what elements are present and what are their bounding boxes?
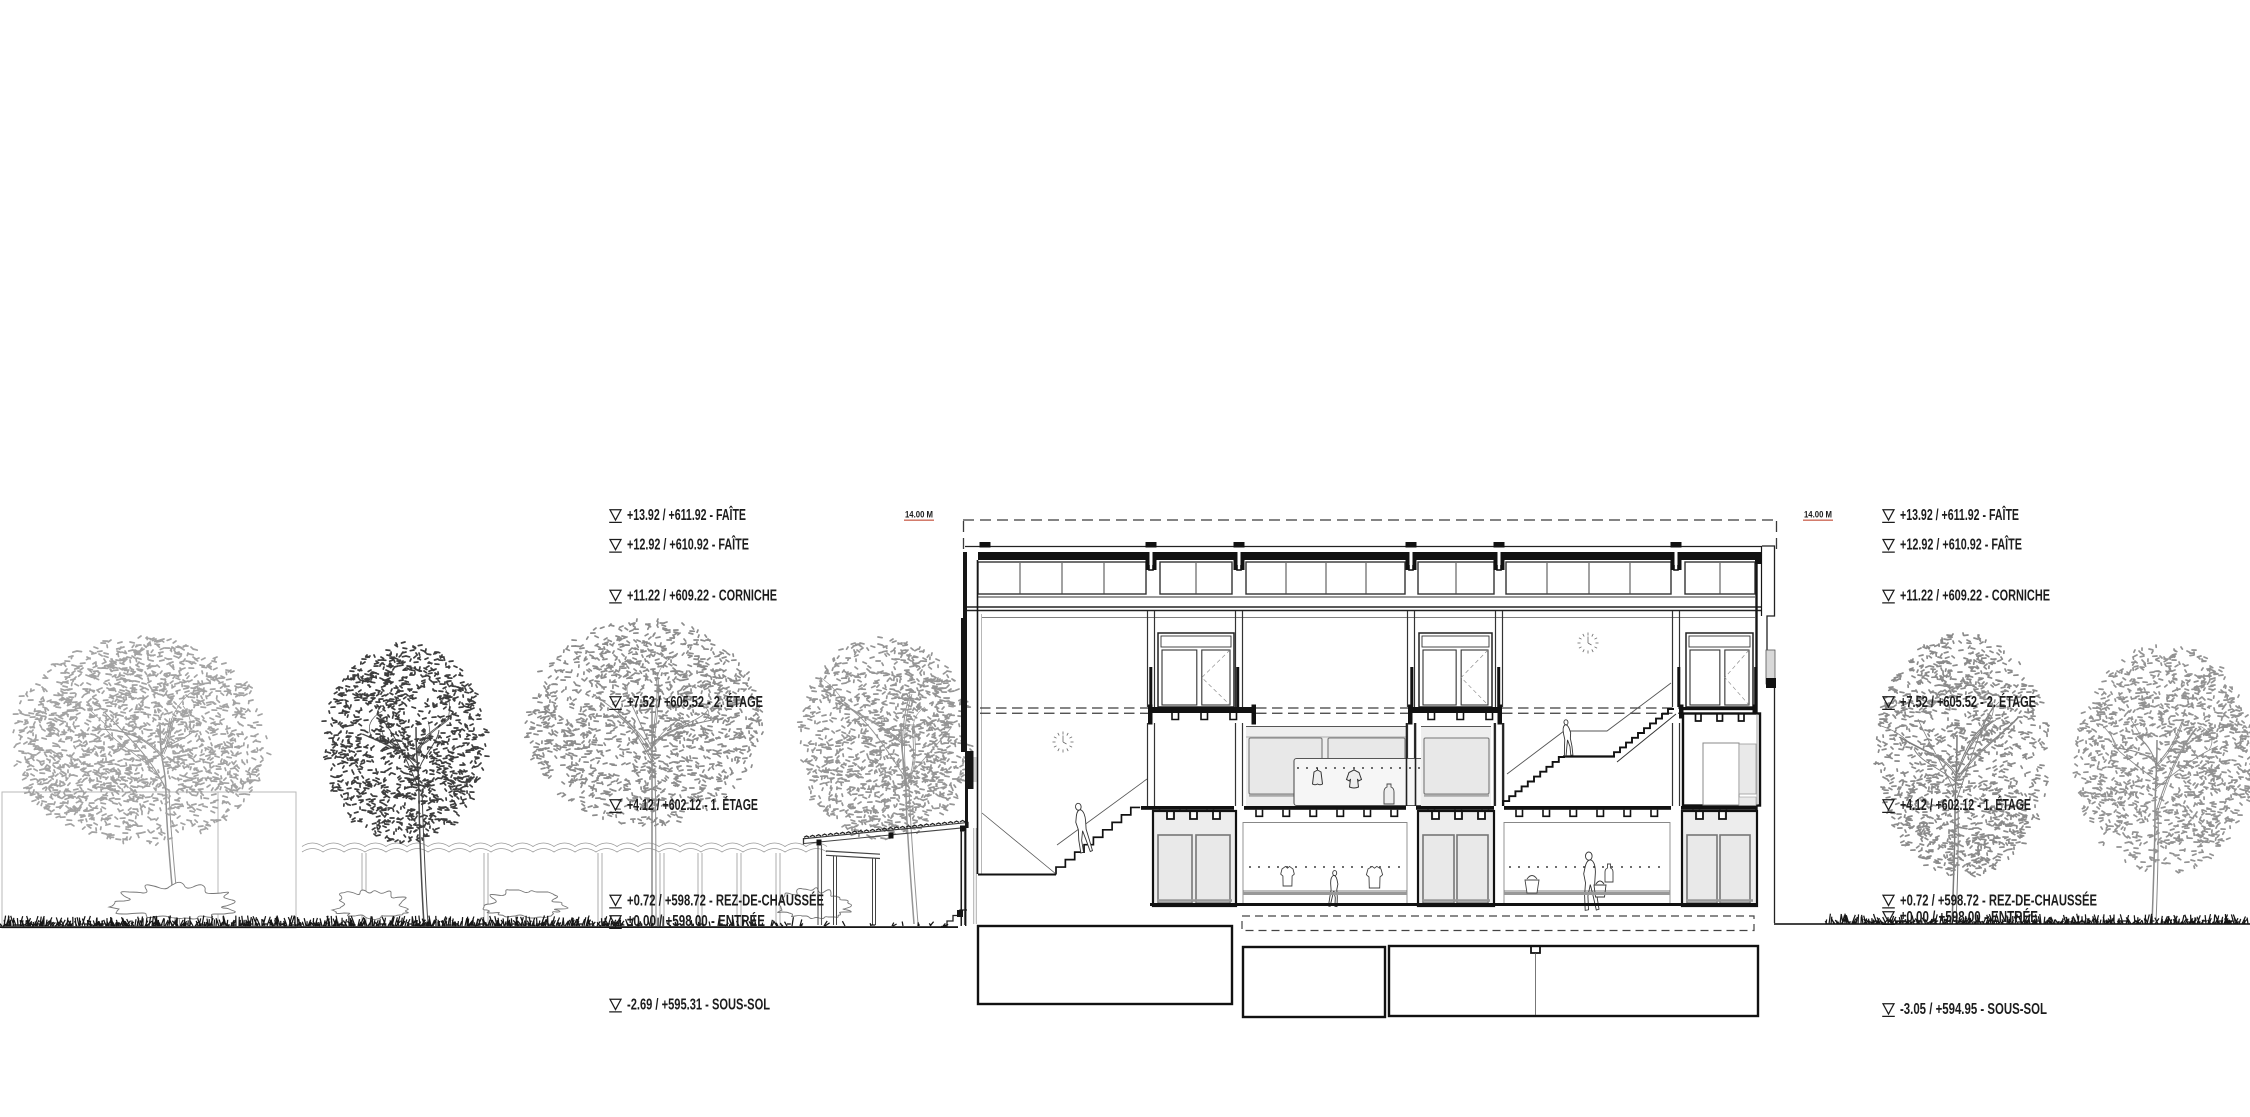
svg-text:14.00 M: 14.00 M <box>1804 510 1832 521</box>
svg-text:+0.72 / +598.72 - REZ-DE-CHAUS: +0.72 / +598.72 - REZ-DE-CHAUSSÉE <box>627 891 824 910</box>
svg-text:+13.92 / +611.92 - FAÎTE: +13.92 / +611.92 - FAÎTE <box>1900 505 2019 524</box>
svg-text:+0.72 / +598.72 - REZ-DE-CHAUS: +0.72 / +598.72 - REZ-DE-CHAUSSÉE <box>1900 891 2097 910</box>
svg-text:+11.22 / +609.22 - CORNICHE: +11.22 / +609.22 - CORNICHE <box>1900 588 2050 605</box>
svg-text:+12.92 / +610.92 - FAÎTE: +12.92 / +610.92 - FAÎTE <box>627 535 749 554</box>
svg-text:±0.00 / +598.00 - ENTRÉE: ±0.00 / +598.00 - ENTRÉE <box>1900 907 2038 926</box>
svg-text:+7.52 / +605.52 - 2. ÉTAGE: +7.52 / +605.52 - 2. ÉTAGE <box>1900 692 2036 711</box>
svg-text:14.00 M: 14.00 M <box>905 510 933 521</box>
svg-text:-3.05 / +594.95 - SOUS-SOL: -3.05 / +594.95 - SOUS-SOL <box>1900 1001 2047 1018</box>
svg-text:+11.22 / +609.22 - CORNICHE: +11.22 / +609.22 - CORNICHE <box>627 588 777 605</box>
svg-text:±0.00 / +598.00 - ENTRÉE: ±0.00 / +598.00 - ENTRÉE <box>627 911 765 930</box>
svg-text:+4.12 / +602.12 - 1. ÉTAGE: +4.12 / +602.12 - 1. ÉTAGE <box>627 795 758 814</box>
svg-text:+13.92 / +611.92 - FAÎTE: +13.92 / +611.92 - FAÎTE <box>627 505 746 524</box>
svg-text:+7.52 / +605.52 - 2. ÉTAGE: +7.52 / +605.52 - 2. ÉTAGE <box>627 692 763 711</box>
svg-text:+4.12 / +602.12 - 1. ÉTAGE: +4.12 / +602.12 - 1. ÉTAGE <box>1900 795 2031 814</box>
svg-text:+12.92 / +610.92 - FAÎTE: +12.92 / +610.92 - FAÎTE <box>1900 535 2022 554</box>
svg-text:-2.69 / +595.31 - SOUS-SOL: -2.69 / +595.31 - SOUS-SOL <box>627 997 770 1014</box>
